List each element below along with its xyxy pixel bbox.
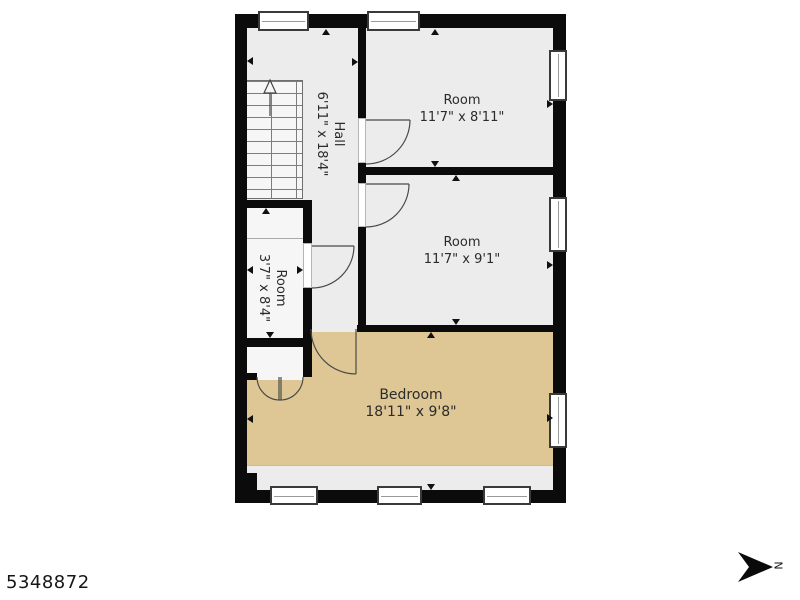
door-opening-bedroom (312, 325, 357, 332)
wall-marker (322, 29, 330, 35)
room-label-hall: Hall 6'11" x 18'4" (313, 72, 347, 196)
wall-hall-rooms-a (358, 28, 366, 118)
wall-left-column-b (303, 288, 312, 377)
room-name: Room (382, 234, 542, 251)
room-dimensions: 3'7" x 8'4" (255, 233, 272, 343)
north-arrow-icon (738, 552, 773, 582)
room-name: Room (272, 233, 289, 343)
wall-marker (262, 208, 270, 214)
wall-marker (547, 261, 553, 269)
window-pane-line (558, 397, 559, 444)
window-pane-line (381, 496, 418, 497)
room-label-middle-right: Room 11'7" x 9'1" (382, 234, 542, 268)
wall-marker (547, 414, 553, 422)
window-bottom-2 (377, 486, 422, 505)
room-dimensions: 18'11" x 9'8" (331, 404, 491, 421)
window-top-2 (367, 11, 420, 31)
stair-center-line (271, 81, 272, 198)
wall-corner-step (247, 473, 257, 490)
window-top-1 (258, 11, 309, 31)
window-bottom-3 (483, 486, 531, 505)
room-label-left: Room 3'7" x 8'4" (255, 233, 289, 343)
wall-hall-rooms-c (358, 227, 366, 332)
listing-id: 5348872 (6, 572, 90, 593)
wall-marker (247, 266, 253, 274)
wall-rooms-divider (366, 167, 553, 175)
staircase (245, 80, 303, 199)
wall-marker (452, 319, 460, 325)
door-opening-room-top (358, 118, 366, 163)
floor-plan: Room 11'7" x 8'11" Room 11'7" x 9'1" Bed… (0, 0, 800, 600)
window-pane-line (274, 496, 314, 497)
wall-marker (297, 266, 303, 274)
door-opening-room-left (303, 243, 312, 288)
wall-marker (352, 58, 358, 66)
wall-marker (247, 415, 253, 423)
window-bottom-1 (270, 486, 318, 505)
wall-marker (547, 100, 553, 108)
wall-marker (431, 29, 439, 35)
bedroom-bottom-boundary-line (247, 465, 553, 466)
stair-rail-line (296, 81, 297, 198)
wall-marker (427, 332, 435, 338)
room-name: Hall (330, 72, 347, 196)
room-label-bedroom: Bedroom 18'11" x 9'8" (331, 387, 491, 421)
room-dimensions: 11'7" x 9'1" (382, 251, 542, 268)
wall-left (235, 14, 247, 503)
wall-marker (431, 161, 439, 167)
window-pane-line (558, 201, 559, 248)
door-opening-room-middle (358, 183, 366, 227)
room-label-top-right: Room 11'7" x 8'11" (382, 92, 542, 126)
window-right-1 (549, 50, 567, 101)
room-name: Room (382, 92, 542, 109)
wall-bedroom-top (357, 325, 553, 332)
door-opening-closet (257, 373, 303, 380)
north-label: N (772, 561, 785, 569)
window-pane-line (262, 21, 305, 22)
window-right-2 (549, 197, 567, 252)
window-pane-line (487, 496, 527, 497)
wall-marker (452, 175, 460, 181)
room-name: Bedroom (331, 387, 491, 404)
bedroom-floor-left (247, 377, 312, 465)
window-pane-line (371, 21, 416, 22)
wall-stairs-bottom (235, 200, 312, 208)
wall-marker (247, 57, 253, 65)
wall-closet-stub (245, 373, 257, 380)
wall-marker (427, 484, 435, 490)
wall-hall-rooms-b (358, 163, 366, 183)
room-dimensions: 6'11" x 18'4" (313, 72, 330, 196)
window-pane-line (558, 54, 559, 97)
room-dimensions: 11'7" x 8'11" (382, 109, 542, 126)
